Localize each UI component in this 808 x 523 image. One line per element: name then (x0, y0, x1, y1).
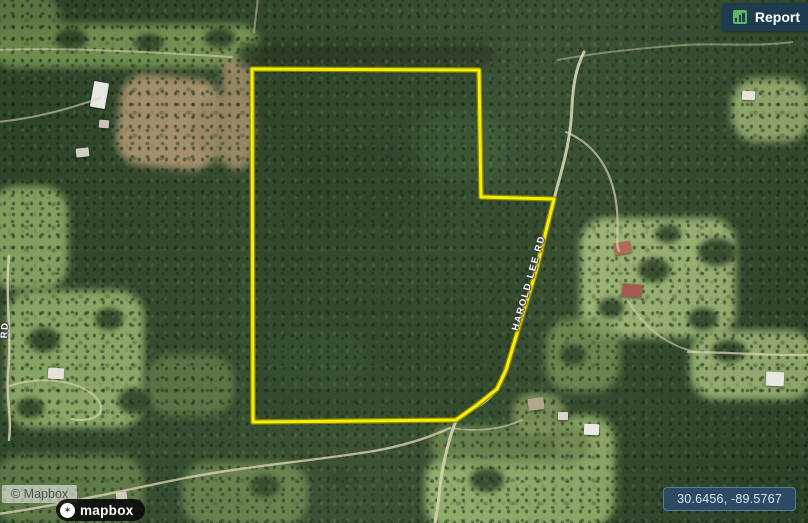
coordinates-readout: 30.6456, -89.5767 (663, 487, 796, 511)
road-path (452, 420, 522, 430)
road-path (0, 98, 100, 122)
property-boundary[interactable] (252, 69, 554, 422)
road-path (8, 256, 10, 440)
report-button-label: Report (755, 9, 800, 25)
bar-chart-icon (733, 10, 747, 24)
road-path (0, 49, 232, 57)
report-button[interactable]: Report (722, 3, 808, 31)
mapbox-logo-icon: ✶ (60, 503, 75, 518)
road-path (254, 0, 258, 32)
road-path (566, 132, 619, 251)
road-path (688, 352, 808, 355)
satellite-map-canvas[interactable]: HAROLD LEE RD RD Report 30.6456, -89.576… (0, 0, 808, 523)
property-boundary-underlay (252, 69, 554, 422)
map-vector-overlay (0, 0, 808, 523)
road-label-left-edge: RD (0, 321, 11, 339)
road-path (627, 299, 695, 352)
mapbox-logo-link[interactable]: ✶ mapbox (56, 499, 145, 521)
road-path (558, 42, 792, 60)
mapbox-wordmark: mapbox (80, 503, 134, 518)
road-path (9, 380, 101, 420)
